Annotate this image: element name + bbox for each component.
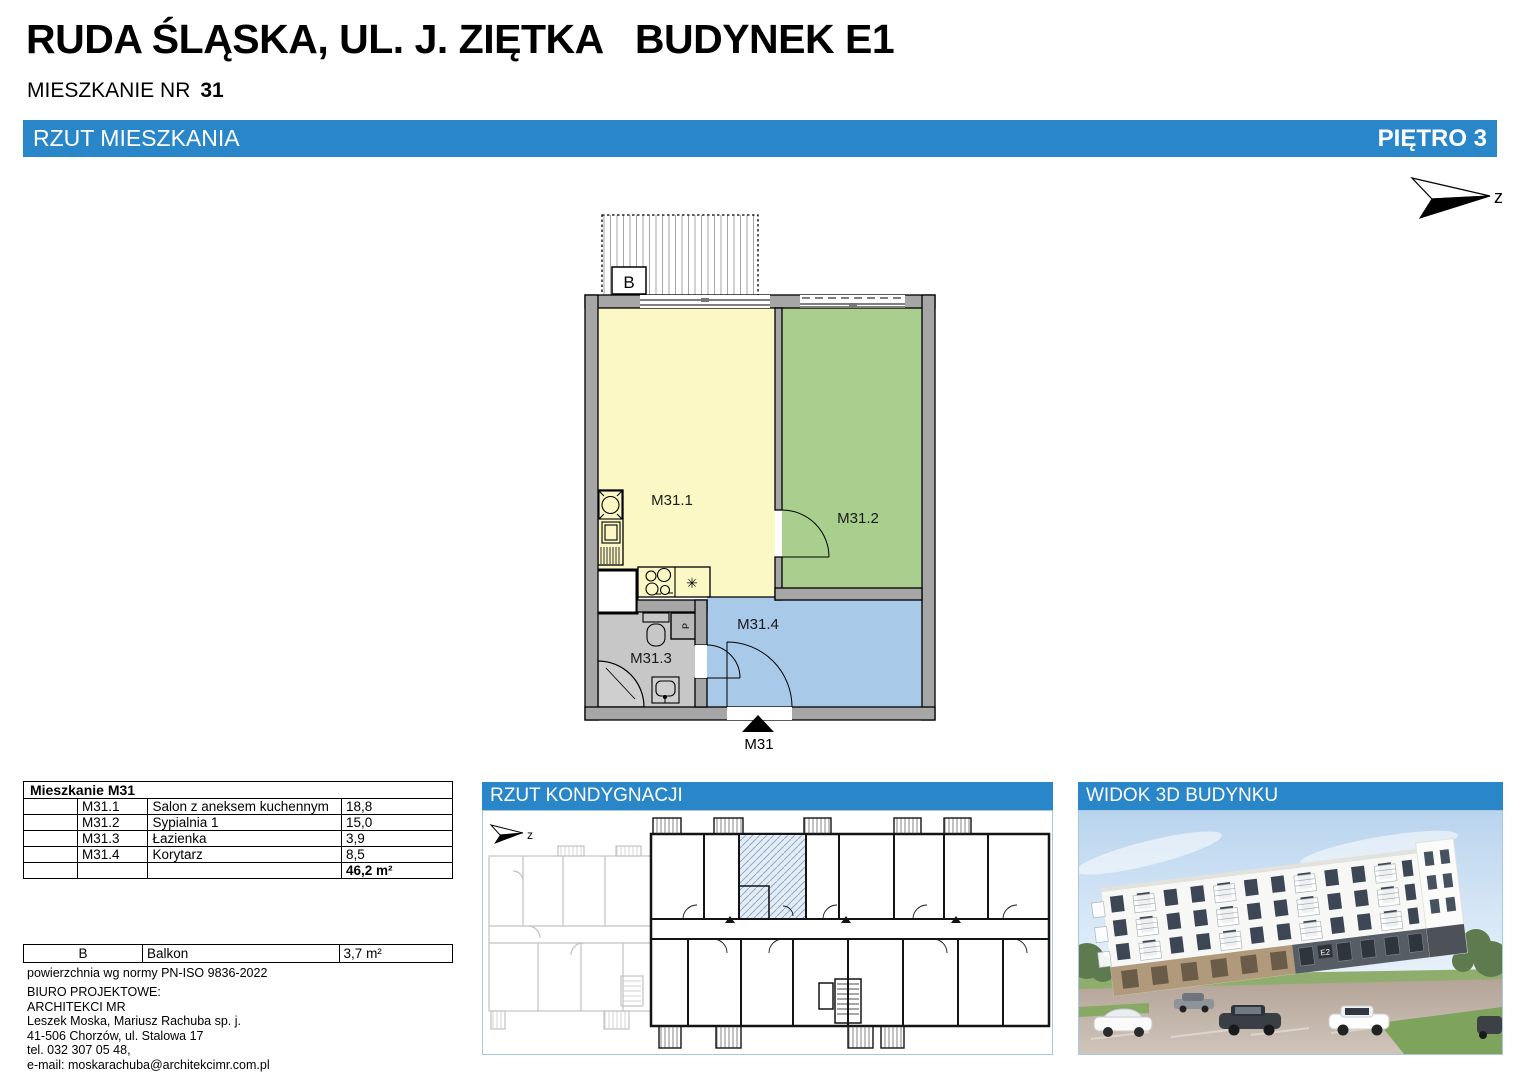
room-label-m31-3: M31.3	[630, 650, 672, 667]
area-table-title: Mieszkanie M31	[24, 782, 453, 799]
plan-section-title: RZUT MIESZKANIA	[33, 125, 240, 152]
table-row: M31.4Korytarz8,5	[24, 847, 453, 863]
room-name: Łazienka	[148, 831, 341, 847]
office-line: Leszek Moska, Mariusz Rachuba sp. j.	[27, 1014, 270, 1029]
entrance-sign-label: E2	[1320, 947, 1331, 957]
room-area: 8,5	[341, 847, 452, 863]
building-section	[651, 818, 1049, 1048]
north-arrow-icon: z	[491, 825, 533, 844]
plan-section-bar: RZUT MIESZKANIA PIĘTRO 3	[23, 120, 1497, 157]
building-3d-panel: WIDOK 3D BUDYNKU	[1078, 782, 1503, 1055]
apartment-floor-plan: B ✳ P	[575, 200, 965, 760]
room-area: 15,0	[341, 815, 452, 831]
north-arrow-icon: z	[1398, 166, 1502, 224]
washer-label: P	[681, 623, 691, 629]
room-code: M31.1	[78, 799, 148, 815]
design-office-block: BIURO PROJEKTOWE: ARCHITEKCI MR Leszek M…	[27, 985, 270, 1073]
table-row: M31.3Łazienka3,9	[24, 831, 453, 847]
faded-building-section	[489, 846, 651, 1029]
floor-badge: PIĘTRO 3	[1378, 125, 1487, 153]
norm-note: powierzchnia wg normy PN-ISO 9836-2022	[27, 966, 267, 980]
room-corridor	[707, 597, 922, 707]
office-line: e-mail: moskarachuba@architekcimr.com.pl	[27, 1058, 270, 1073]
balcony-label: B	[623, 273, 634, 292]
north-arrow-label: z	[527, 828, 533, 842]
north-arrow-label: z	[1494, 187, 1502, 207]
highlighted-apartment	[739, 834, 806, 919]
entrance-marker: M31	[742, 715, 774, 753]
balcony-name: Balkon	[142, 945, 339, 963]
room-name: Salon z aneksem kuchennym	[148, 799, 341, 815]
table-row: M31.2Sypialnia 115,0	[24, 815, 453, 831]
room-code: M31.4	[78, 847, 148, 863]
table-row-total: 46,2 m²	[24, 863, 453, 879]
office-line: BIURO PROJEKTOWE:	[27, 985, 270, 1000]
room-code: M31.2	[78, 815, 148, 831]
apartment-card-page: { "header": { "title": "RUDA ŚLĄSKA, UL.…	[0, 0, 1527, 1080]
room-bedroom	[782, 308, 922, 588]
room-living	[598, 308, 775, 597]
table-row: BBalkon3,7 m²	[24, 945, 453, 963]
floor-overview-panel: RZUT KONDYGNACJI z	[482, 782, 1053, 1055]
kitchen-symbol: ✳	[686, 575, 698, 591]
entrance-label: M31	[744, 736, 773, 753]
fridge	[592, 570, 637, 613]
office-line: tel. 032 307 05 48,	[27, 1043, 270, 1058]
room-name: Sypialnia 1	[148, 815, 341, 831]
page-title: RUDA ŚLĄSKA, UL. J. ZIĘTKA BUDYNEK E1	[26, 16, 894, 63]
room-area: 3,9	[341, 831, 452, 847]
office-line: ARCHITEKCI MR	[27, 1000, 270, 1015]
room-label-m31-4: M31.4	[737, 616, 779, 633]
office-line: 41-506 Chorzów, ul. Stalowa 17	[27, 1029, 270, 1044]
room-name: Korytarz	[148, 847, 341, 863]
apartment-number-label: MIESZKANIE NR	[27, 79, 190, 102]
building-3d-view: E2	[1079, 811, 1502, 1054]
balcony-code: B	[24, 945, 143, 963]
balcony-area: 3,7 m²	[339, 945, 452, 963]
apartment-area-table: Mieszkanie M31 M31.1Salon z aneksem kuch…	[23, 781, 453, 879]
balcony: B	[602, 215, 758, 300]
floor-overview-plan: z	[483, 811, 1052, 1054]
balcony-table: BBalkon3,7 m²	[23, 944, 453, 963]
building-3d-header: WIDOK 3D BUDYNKU	[1078, 782, 1503, 810]
apartment-number-line: MIESZKANIE NR31	[27, 79, 224, 103]
table-row: M31.1Salon z aneksem kuchennym18,8	[24, 799, 453, 815]
room-area: 18,8	[341, 799, 452, 815]
total-area: 46,2 m²	[341, 863, 452, 879]
room-label-m31-1: M31.1	[651, 492, 693, 509]
room-label-m31-2: M31.2	[837, 510, 879, 527]
floor-overview-header: RZUT KONDYGNACJI	[482, 782, 1053, 810]
room-code: M31.3	[78, 831, 148, 847]
apartment-number-value: 31	[200, 79, 223, 102]
